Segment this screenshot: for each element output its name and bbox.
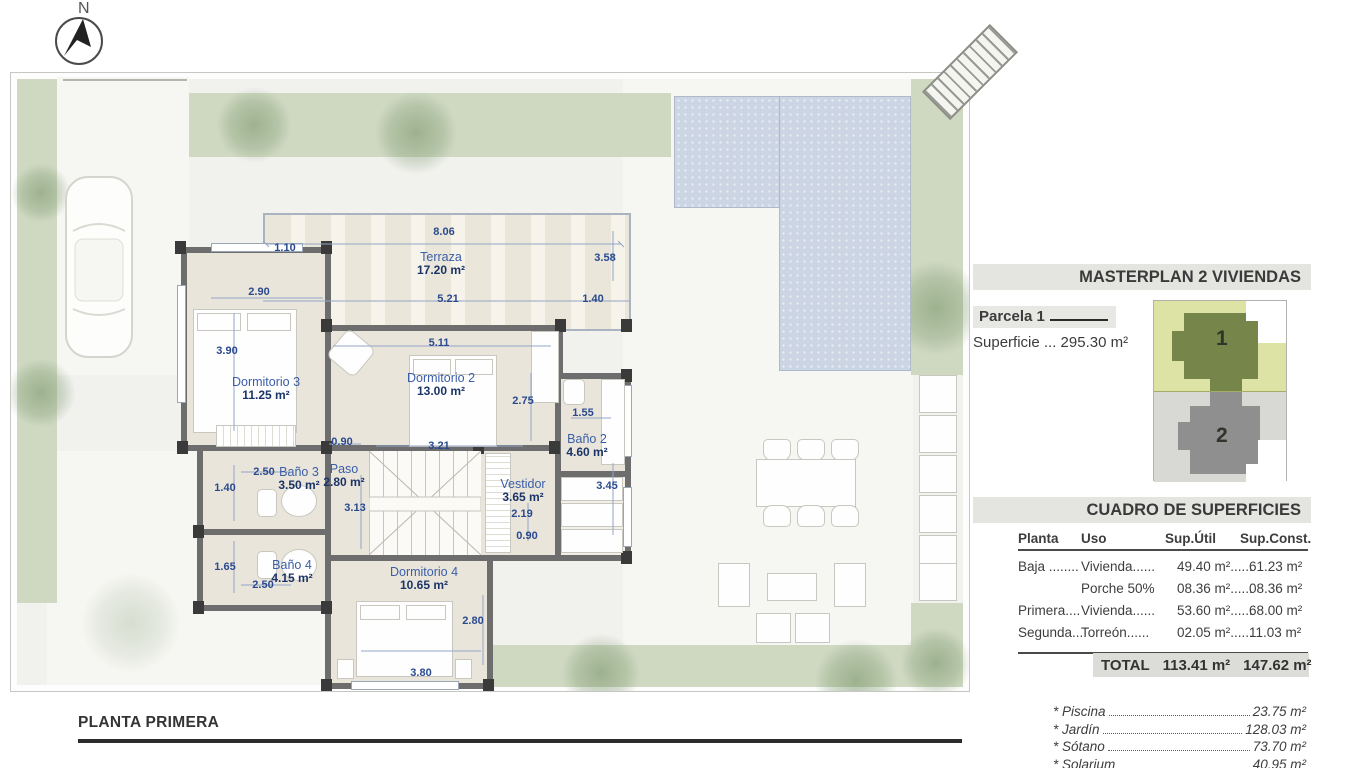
minimap-house-1-number: 1 <box>1216 327 1228 351</box>
minimap-parcel-2: 2 <box>1154 392 1286 482</box>
dimension-label: 5.21 <box>437 293 458 305</box>
table-row: Porche 50% 08.36 m²......08.36 m² <box>1018 578 1308 600</box>
total-util: 113.41 m² <box>1163 657 1231 674</box>
minimap-parcel-1: 1 <box>1154 301 1286 392</box>
table-row: Primera....Vivienda...... 53.60 m²......… <box>1018 600 1308 622</box>
extras-list: * Piscina23.75 m² * Jardín128.03 m² * Só… <box>1053 703 1306 768</box>
room-label-vestidor: Vestidor3.65 m² <box>500 478 545 504</box>
masterplan-header: MASTERPLAN 2 VIVIENDAS <box>973 264 1311 290</box>
dimension-label: 5.11 <box>429 337 450 349</box>
room-label-bano-4: Baño 44.15 m² <box>271 559 312 585</box>
room-label-bano-3: Baño 33.50 m² <box>278 466 319 492</box>
dimension-label: 1.10 <box>274 242 295 254</box>
dot-leader <box>1108 739 1250 751</box>
list-item: * Piscina23.75 m² <box>1053 703 1306 721</box>
room-label-dormitorio-3: Dormitorio 311.25 m² <box>232 376 300 402</box>
dimension-label: 1.65 <box>214 561 235 573</box>
dimension-label: 3.13 <box>344 502 365 514</box>
room-label-bano-2: Baño 24.60 m² <box>566 433 607 459</box>
minimap-house-2-number: 2 <box>1216 424 1228 448</box>
dimension-label: 0.90 <box>516 530 537 542</box>
dimension-label: 8.06 <box>433 226 454 238</box>
plan-title-rule <box>78 739 962 743</box>
list-item: * Sótano73.70 m² <box>1053 738 1306 756</box>
cuadro-header: CUADRO DE SUPERFICIES <box>973 497 1311 523</box>
surfaces-table-body: Baja ........Vivienda...... 49.40 m²....… <box>1018 551 1308 654</box>
dimension-label: 2.19 <box>511 508 532 520</box>
minimap-notch <box>1258 301 1286 343</box>
room-label-dormitorio-2: Dormitorio 213.00 m² <box>407 372 475 398</box>
dimension-label: 3.80 <box>410 667 431 679</box>
dimension-label: 0.90 <box>331 436 352 448</box>
minimap-notch <box>1258 440 1286 482</box>
dot-leader <box>1109 704 1250 716</box>
minimap-house-2-step <box>1178 422 1190 450</box>
dimension-label: 1.55 <box>572 407 593 419</box>
compass: N <box>52 2 112 68</box>
list-item: * Jardín128.03 m² <box>1053 721 1306 739</box>
total-const: 147.62 m² <box>1243 657 1311 674</box>
room-label-dormitorio-4: Dormitorio 410.65 m² <box>390 566 458 592</box>
minimap-notch <box>1246 464 1258 482</box>
site-plan: 8.06 1.10 3.58 2.90 5.21 1.40 3.90 5.11 … <box>10 72 970 692</box>
dimension-label: 3.21 <box>428 440 449 452</box>
dimension-lines <box>11 73 969 691</box>
dimension-label: 2.90 <box>248 286 269 298</box>
table-row: Segunda...Torreón...... 02.05 m²......11… <box>1018 622 1308 644</box>
dimension-label: 2.80 <box>462 615 483 627</box>
total-row: TOTAL 113.41 m² 147.62 m² <box>1093 653 1309 677</box>
room-label-paso: Paso2.80 m² <box>323 463 364 489</box>
parcela-underline <box>1050 319 1108 321</box>
minimap-house-1-neck <box>1210 379 1242 391</box>
plan-title: PLANTA PRIMERA <box>78 714 219 732</box>
surfaces-table: Planta Uso Sup.Útil Sup.Const. Baja ....… <box>1018 531 1308 654</box>
table-row: Baja ........Vivienda...... 49.40 m²....… <box>1018 556 1308 578</box>
masterplan-minimap: 1 2 <box>1153 300 1287 481</box>
total-label: TOTAL <box>1101 657 1150 674</box>
list-item: * Solarium40.95 m² <box>1053 756 1306 768</box>
dimension-label: 2.50 <box>253 466 274 478</box>
room-label-terraza: Terraza17.20 m² <box>417 251 465 277</box>
surfaces-table-header: Planta Uso Sup.Útil Sup.Const. <box>1018 531 1308 551</box>
floorplan-page: N <box>0 0 1366 768</box>
parcela-label: Parcela 1 <box>973 306 1116 328</box>
minimap-house-1-step <box>1172 331 1184 361</box>
compass-rose-icon <box>52 14 108 70</box>
superficie-label: Superficie ... 295.30 m² <box>973 334 1128 351</box>
minimap-notch <box>1246 301 1258 321</box>
dimension-label: 1.40 <box>582 293 603 305</box>
dot-leader <box>1103 722 1243 734</box>
dimension-label: 1.40 <box>214 482 235 494</box>
dimension-label: 3.45 <box>596 480 617 492</box>
dot-leader <box>1118 757 1249 768</box>
dimension-label: 3.90 <box>216 345 237 357</box>
dimension-label: 2.75 <box>512 395 533 407</box>
dimension-label: 3.58 <box>594 252 615 264</box>
